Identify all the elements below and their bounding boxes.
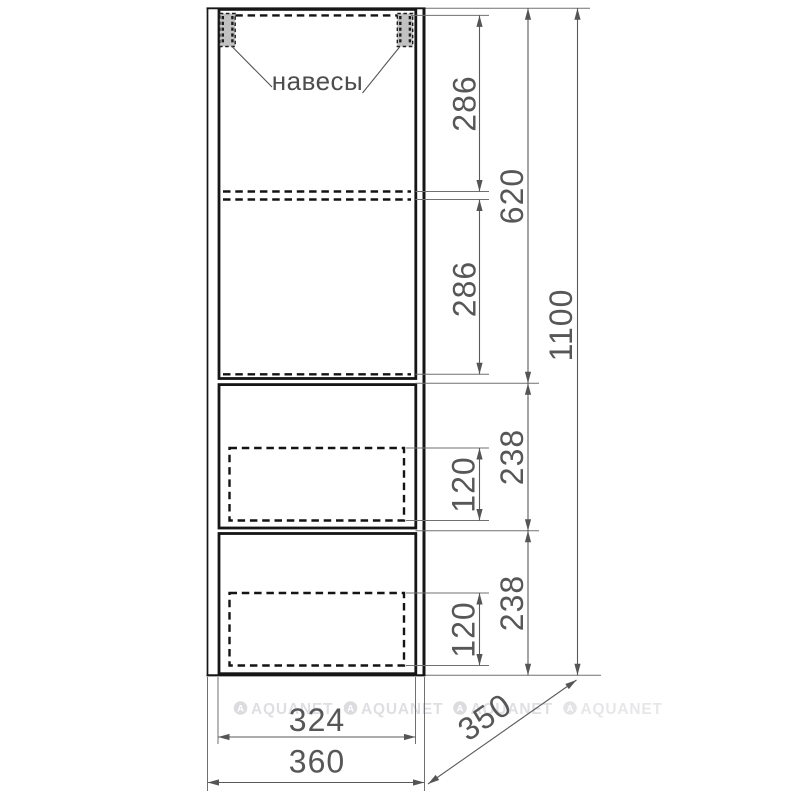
dim-value-drawer2-front: 238 xyxy=(494,575,530,631)
leader-line-left xyxy=(232,47,272,88)
drawer1-box-hidden xyxy=(230,448,405,521)
watermark-logo-letter: A xyxy=(237,704,244,715)
drawer2-box-hidden xyxy=(230,593,405,666)
watermark: A AQUANET xyxy=(344,701,444,718)
watermark: A AQUANET xyxy=(563,701,663,718)
dim-value-front-width: 324 xyxy=(289,702,345,738)
dim-value-shelf-top: 286 xyxy=(447,75,483,131)
dim-value-upper-section: 620 xyxy=(494,168,530,224)
dimensions: 286 286 120 120 620 238 238 1100 324 360… xyxy=(208,8,580,784)
dim-value-drawer2-box: 120 xyxy=(446,601,482,657)
leader-line-right xyxy=(363,47,401,94)
hangers-label: навесы xyxy=(272,66,364,96)
dim-value-total-height: 1100 xyxy=(543,289,579,362)
hanger-bracket-left xyxy=(220,14,235,47)
watermark-text: AQUANET xyxy=(581,701,663,718)
hanger-bracket-right xyxy=(397,14,412,47)
watermark-text: AQUANET xyxy=(361,701,443,718)
drawer1-front-panel xyxy=(219,385,416,528)
cabinet-dimension-drawing: A AQUANET A AQUANET A AQUANET A AQUANET xyxy=(0,0,800,800)
dim-value-depth: 350 xyxy=(451,686,518,748)
dim-value-shelf-bottom: 286 xyxy=(447,261,483,317)
dim-value-total-width: 360 xyxy=(289,744,345,780)
drawer2-front-panel xyxy=(219,534,416,674)
cabinet-front-view: навесы xyxy=(207,8,426,676)
dim-value-drawer1-front: 238 xyxy=(494,429,530,485)
watermark-logo-letter: A xyxy=(347,704,354,715)
upper-door-panel xyxy=(219,9,416,378)
dim-value-drawer1-box: 120 xyxy=(446,456,482,512)
watermark-logo-letter: A xyxy=(567,704,574,715)
